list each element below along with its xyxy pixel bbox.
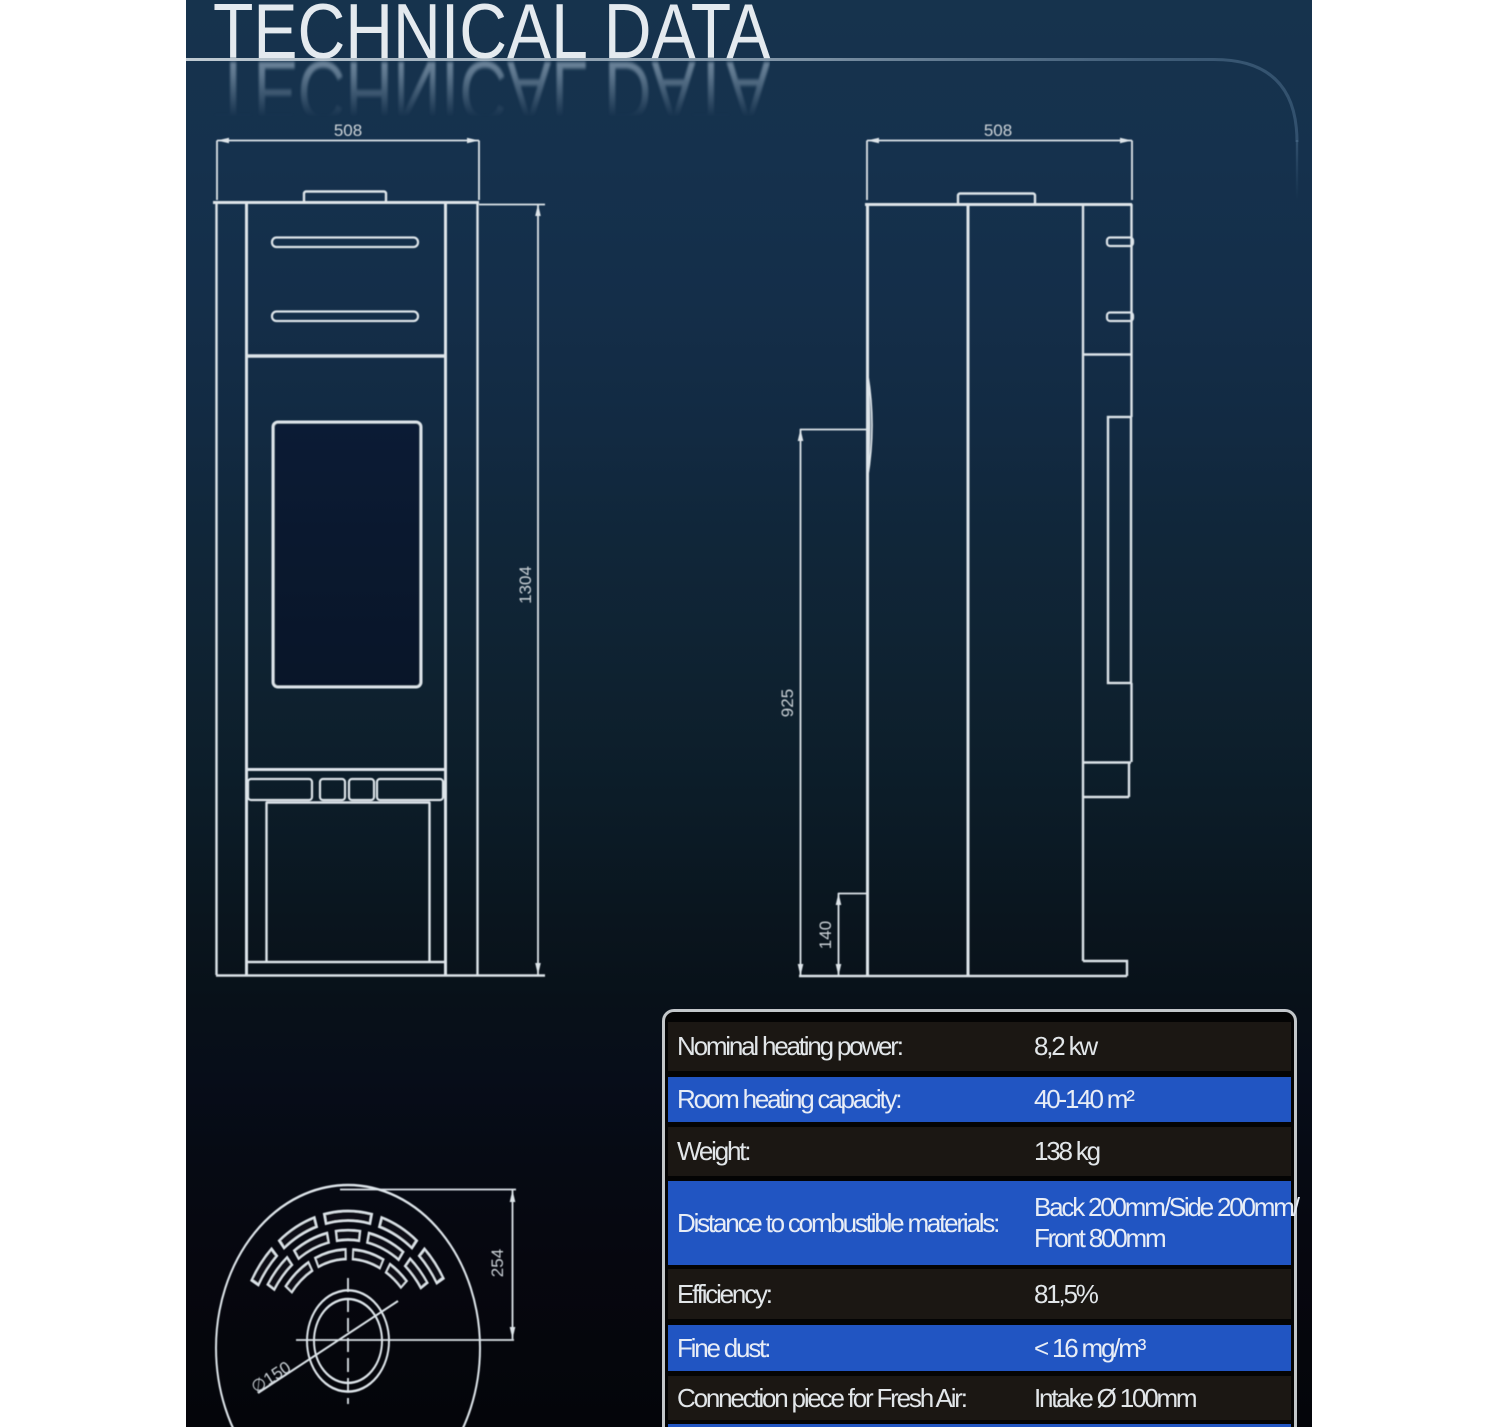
svg-text:508: 508 — [334, 121, 362, 140]
svg-text:1304: 1304 — [516, 566, 535, 604]
svg-text:254: 254 — [488, 1249, 507, 1277]
svg-text:925: 925 — [778, 689, 797, 717]
svg-text:140: 140 — [816, 921, 835, 949]
svg-text:∅150: ∅150 — [248, 1358, 295, 1397]
svg-text:508: 508 — [984, 121, 1012, 140]
